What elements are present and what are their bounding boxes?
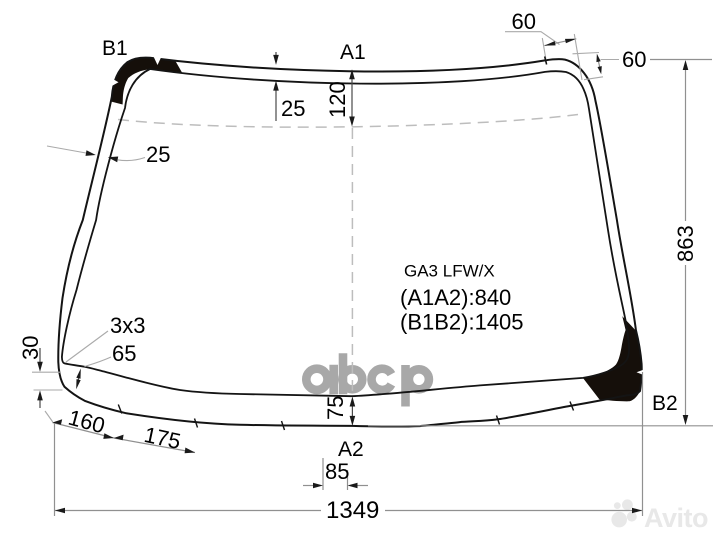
svg-text:GA3 LFW/X: GA3 LFW/X: [404, 262, 495, 281]
svg-text:3x3: 3x3: [110, 313, 145, 338]
svg-text:B2: B2: [652, 392, 678, 415]
svg-text:30: 30: [18, 336, 43, 360]
svg-text:60: 60: [512, 9, 536, 34]
svg-text:(B1B2):1405: (B1B2):1405: [400, 310, 524, 335]
svg-text:25: 25: [281, 96, 305, 121]
svg-text:Avito: Avito: [644, 503, 708, 533]
svg-text:25: 25: [146, 142, 170, 167]
svg-text:85: 85: [325, 459, 349, 484]
svg-text:A1: A1: [340, 41, 366, 64]
svg-text:75: 75: [323, 396, 348, 420]
svg-text:863: 863: [673, 225, 698, 262]
svg-text:B1: B1: [102, 37, 128, 60]
svg-text:120: 120: [325, 81, 350, 118]
svg-text:A2: A2: [338, 438, 364, 461]
svg-text:1349: 1349: [326, 497, 379, 524]
svg-text:(A1A2):840: (A1A2):840: [400, 285, 511, 310]
svg-text:60: 60: [622, 47, 646, 72]
svg-text:65: 65: [112, 341, 136, 366]
